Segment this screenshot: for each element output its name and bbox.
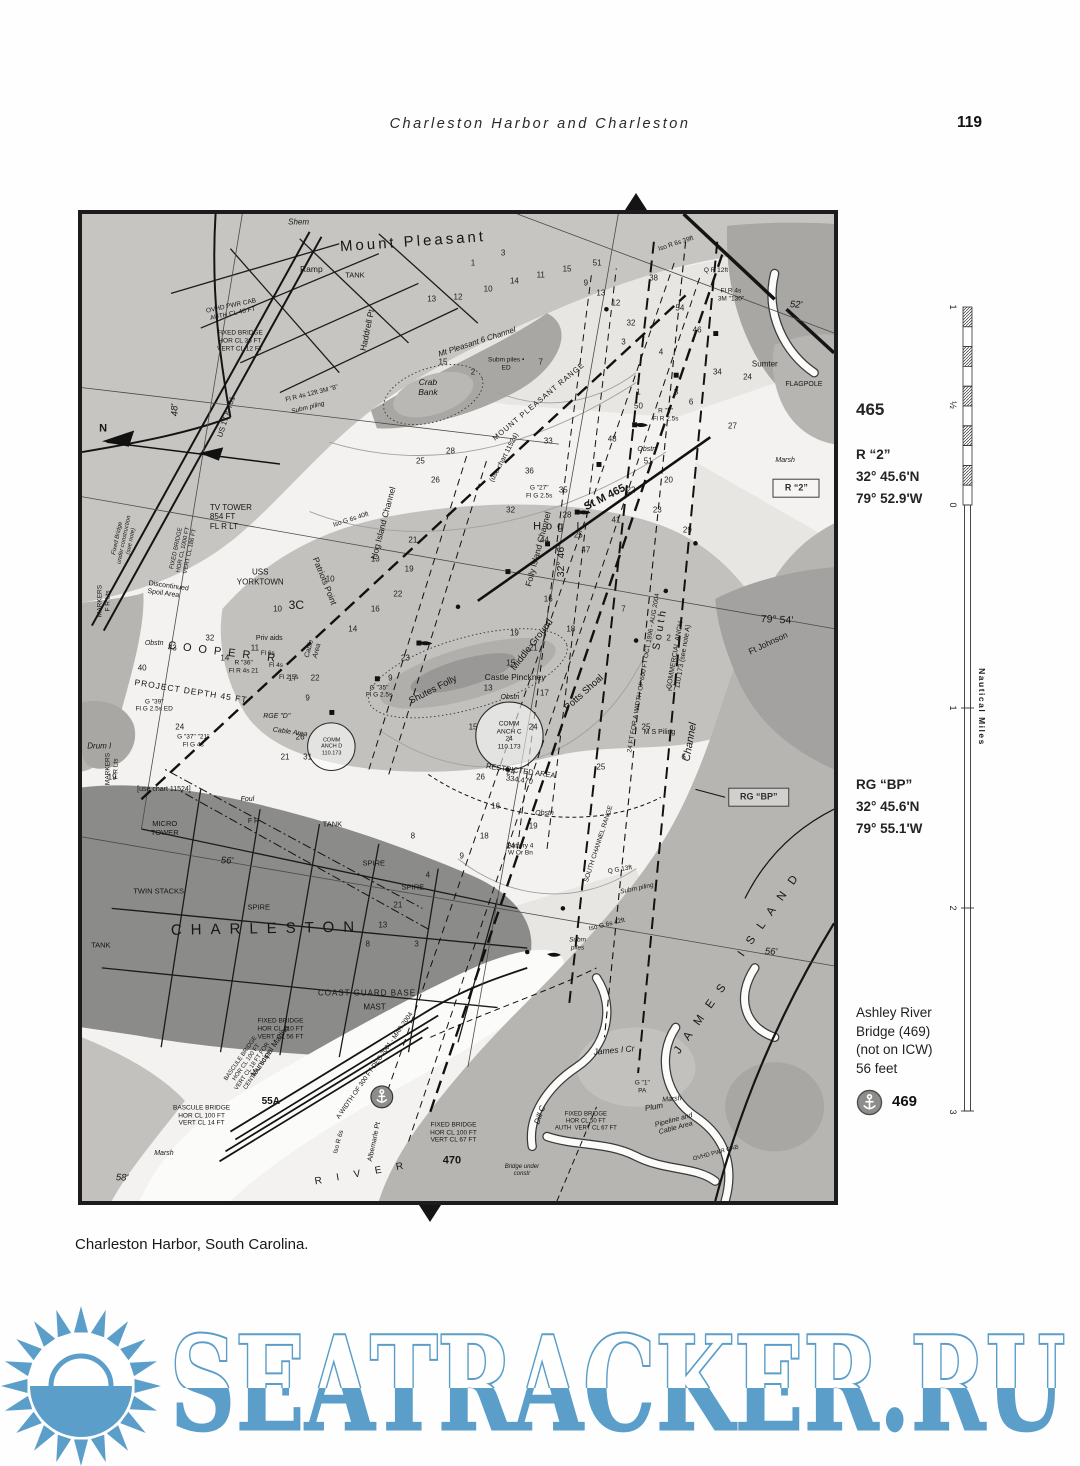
icw-route-marker-bottom-icon bbox=[419, 1205, 441, 1222]
depth-sounding: 19 bbox=[529, 821, 538, 830]
depth-sounding: 4 bbox=[426, 871, 430, 880]
depth-sounding: 14 bbox=[348, 624, 357, 633]
sun-logo-icon bbox=[1, 1306, 161, 1466]
map-label: Cable Area bbox=[304, 639, 325, 661]
map-label: G "27" Fl G 2.5s bbox=[526, 485, 552, 500]
map-label: TANK bbox=[91, 942, 110, 951]
depth-sounding: 21 bbox=[281, 752, 290, 761]
map-label: COMMERCIAL ANCH 110.173 (see note A) bbox=[666, 621, 694, 691]
chart-number: 465 bbox=[856, 400, 884, 420]
map-label: 56' bbox=[221, 856, 234, 868]
depth-sounding: 25 bbox=[574, 530, 583, 539]
map-label: R I V E R bbox=[314, 1160, 410, 1188]
depth-sounding: 35 bbox=[559, 486, 568, 495]
scale-tick-label: ½ bbox=[948, 401, 958, 409]
map-label: Plum bbox=[644, 1101, 664, 1113]
depth-sounding: 3 bbox=[501, 249, 505, 258]
chart-labels: Mount PleasantTANKRampShemHaddrell PtCra… bbox=[82, 214, 834, 1201]
map-label: R “2” bbox=[773, 479, 820, 498]
depth-sounding: 13 bbox=[484, 683, 493, 692]
map-label: SPIRE bbox=[402, 884, 425, 893]
depth-sounding: 40 bbox=[138, 664, 147, 673]
map-label: Fl 4s bbox=[269, 662, 283, 670]
depth-sounding: 11 bbox=[537, 271, 545, 280]
mark-name: RG “BP” bbox=[856, 774, 922, 796]
depth-sounding: 13 bbox=[371, 555, 380, 564]
map-label: G "39" Fl G 2.5s ED bbox=[136, 698, 173, 713]
map-label: Obstn bbox=[535, 810, 554, 818]
map-label: FIXED BRIDGE HOR CL 36 FT VERT CL 12 FT bbox=[217, 330, 263, 353]
depth-sounding: 23 bbox=[401, 654, 410, 663]
depth-sounding: 12 bbox=[454, 292, 463, 301]
bridge-name-line1: Ashley River bbox=[856, 1004, 933, 1023]
depth-sounding: 22 bbox=[311, 673, 320, 682]
depth-sounding: 16 bbox=[371, 604, 380, 613]
depth-sounding: 24 bbox=[175, 723, 184, 732]
depth-sounding: 6 bbox=[689, 397, 693, 406]
mark-latitude: 32° 45.6'N bbox=[856, 796, 922, 818]
map-label: Subm piles bbox=[569, 937, 586, 952]
depth-sounding: 9 bbox=[305, 693, 309, 702]
depth-sounding: 26 bbox=[296, 733, 305, 742]
map-label: G "35" Fl G 2.5s bbox=[366, 684, 392, 699]
depth-sounding: 15 bbox=[563, 265, 572, 274]
map-label: FIXED BRIDGE HOR CL 100 FT VERT CL 67 FT bbox=[430, 1121, 477, 1144]
map-label: Fl R 4s 3M "130" bbox=[718, 287, 744, 302]
depth-sounding: 33 bbox=[544, 437, 553, 446]
depth-sounding: 7 bbox=[621, 604, 625, 613]
map-label: Crab Bank bbox=[418, 377, 437, 397]
map-label: Marsh bbox=[154, 1149, 173, 1157]
map-label: Obstn bbox=[145, 640, 164, 648]
depth-sounding: 24 bbox=[506, 767, 515, 776]
depth-sounding: 15 bbox=[506, 659, 515, 668]
map-label: TANK bbox=[345, 272, 364, 281]
map-label: BASCULE BRIDGE HOR CL 100 FT VERT CL 14 … bbox=[173, 1105, 230, 1128]
map-label: Shutes Folly bbox=[407, 673, 459, 707]
map-label: Mount Pleasant bbox=[339, 228, 486, 256]
map-label: Hog Island Channel bbox=[368, 486, 397, 561]
scale-tick-label: 0 bbox=[948, 502, 958, 507]
map-label: R "36" Fl R 4s 21 bbox=[229, 659, 259, 674]
depth-sounding: 34 bbox=[713, 367, 722, 376]
depth-sounding: 51 bbox=[593, 259, 602, 268]
map-label: Fixed Bridge under construction (see not… bbox=[109, 513, 140, 566]
map-label: Subm piling bbox=[620, 882, 655, 897]
mark-longitude: 79° 55.1'W bbox=[856, 818, 922, 840]
scale-tick-label: 1 bbox=[948, 304, 958, 309]
map-label: Drum I bbox=[87, 741, 111, 750]
depth-sounding: 16 bbox=[491, 802, 500, 811]
nautical-chart: Mount PleasantTANKRampShemHaddrell PtCra… bbox=[78, 210, 838, 1205]
depth-sounding: 28 bbox=[446, 446, 455, 455]
depth-sounding: 48 bbox=[608, 435, 617, 444]
map-label: Fl 6s bbox=[261, 650, 275, 658]
map-label: OVHD PWR CAB AUTH CL 40 FT bbox=[206, 297, 259, 323]
map-label: Ft Johnson bbox=[747, 630, 789, 657]
depth-sounding: 9 bbox=[388, 673, 392, 682]
depth-sounding: 31 bbox=[303, 752, 312, 761]
depth-sounding: 38 bbox=[649, 274, 658, 283]
depth-sounding: 27 bbox=[728, 422, 737, 431]
map-label: US 17 & 701 bbox=[216, 396, 238, 439]
map-label: R "2" Fl R 2.5s bbox=[653, 408, 679, 423]
depth-sounding: 3 bbox=[621, 338, 625, 347]
map-label: 58' bbox=[115, 1172, 128, 1184]
icw-route-marker-top-icon bbox=[625, 193, 647, 210]
map-label: Marsh bbox=[662, 1095, 682, 1105]
depth-sounding: 22 bbox=[627, 486, 636, 495]
depth-sounding: 26 bbox=[431, 476, 440, 485]
depth-sounding: 14 bbox=[510, 277, 519, 286]
depth-sounding: 1 bbox=[636, 387, 640, 396]
depth-sounding: 14 bbox=[506, 841, 515, 850]
depth-sounding: 47 bbox=[581, 545, 590, 554]
map-label: Ramp bbox=[300, 264, 323, 274]
scale-tick-label: 3 bbox=[948, 1109, 958, 1114]
depth-sounding: 21 bbox=[408, 535, 417, 544]
map-label: Iso R 6s bbox=[332, 1129, 346, 1154]
map-label: Pipeline and Cable Area bbox=[655, 1112, 696, 1138]
bridge-annotation: Ashley River Bridge (469) (not on ICW) 5… bbox=[856, 1004, 933, 1116]
depth-sounding: 2 bbox=[471, 367, 475, 376]
depth-sounding: 19 bbox=[405, 565, 414, 574]
depth-sounding: 17 bbox=[288, 673, 297, 682]
depth-sounding: 13 bbox=[427, 294, 436, 303]
map-label: [use chart 11524] bbox=[137, 786, 191, 794]
depth-sounding: 10 bbox=[273, 604, 282, 613]
map-label: Iso G 6s 42ft bbox=[588, 916, 626, 932]
map-label: FIXED BRIDGE HOR CL 1000 FT VERT CL 186 … bbox=[169, 525, 199, 575]
depth-sounding: 24 bbox=[743, 372, 752, 381]
map-label: MARKERS F R Lts bbox=[96, 585, 111, 617]
depth-sounding: 44 bbox=[540, 535, 549, 544]
map-label: Q G 13ft bbox=[607, 864, 633, 876]
map-label: Fl R 4s 12ft 3M "8" bbox=[285, 383, 339, 404]
depth-sounding: 32 bbox=[627, 318, 636, 327]
depth-sounding: 8 bbox=[411, 831, 415, 840]
depth-sounding: 25 bbox=[596, 762, 605, 771]
map-label: TWIN STACKS bbox=[133, 888, 184, 897]
map-label: Foul bbox=[241, 796, 255, 804]
depth-sounding: 36 bbox=[525, 466, 534, 475]
depth-sounding: 24 bbox=[529, 723, 538, 732]
depth-sounding: 15 bbox=[439, 358, 448, 367]
map-label: COAST GUARD BASE bbox=[318, 988, 416, 997]
mark-name: R “2” bbox=[856, 444, 922, 466]
map-label: G "37" "21" Fl G 4s bbox=[177, 733, 209, 748]
map-label: Castle Pinckney bbox=[485, 672, 546, 682]
map-label: Albemarle Pt bbox=[366, 1121, 382, 1162]
map-label: Mt Pleasant 6 Channel bbox=[437, 325, 517, 359]
map-label: SPIRE bbox=[363, 860, 386, 869]
mark-latitude: 32° 45.6'N bbox=[856, 466, 922, 488]
depth-sounding: 26 bbox=[476, 772, 485, 781]
map-label: James I Cr bbox=[593, 1043, 635, 1057]
map-label: Priv aids bbox=[256, 635, 283, 643]
depth-sounding: 15 bbox=[469, 723, 478, 732]
map-label: 48' bbox=[170, 404, 181, 416]
depth-sounding: 1 bbox=[471, 259, 475, 268]
map-label: TANK bbox=[323, 821, 342, 830]
bridge-name-line2: Bridge (469) bbox=[856, 1023, 933, 1042]
depth-sounding: 46 bbox=[693, 326, 702, 335]
depth-sounding: 8 bbox=[366, 940, 370, 949]
map-label: Obstn bbox=[501, 694, 520, 702]
depth-sounding: 22 bbox=[393, 589, 402, 598]
map-label: MOUNT PLEASANT RANGE bbox=[491, 360, 587, 442]
book-page: Charleston Harbor and Charleston 119 bbox=[0, 0, 1080, 1466]
depth-sounding: 13 bbox=[378, 920, 387, 929]
map-label: COMM ANCH D 110.173 bbox=[321, 737, 342, 756]
depth-sounding: 23 bbox=[653, 506, 662, 515]
depth-sounding: 50 bbox=[634, 402, 643, 411]
depth-sounding: 27 bbox=[668, 683, 677, 692]
map-label: Marsh bbox=[775, 457, 794, 465]
depth-sounding: 20 bbox=[664, 476, 673, 485]
map-label: St M 465 bbox=[582, 482, 628, 514]
map-label: Subm piling bbox=[290, 401, 325, 417]
anchor-icon bbox=[856, 1089, 883, 1116]
map-label: MICRO TOWER bbox=[151, 820, 179, 838]
map-label: Discontinued Spoil Area bbox=[147, 580, 189, 602]
map-label: 32° 46' bbox=[555, 545, 567, 577]
map-label: SPIRE bbox=[247, 903, 270, 912]
map-label: N bbox=[99, 423, 107, 436]
map-label: RGE "D" bbox=[263, 713, 290, 721]
depth-sounding: 32 bbox=[205, 634, 214, 643]
depth-sounding: 10 bbox=[326, 575, 335, 584]
depth-sounding: 6 bbox=[681, 752, 685, 761]
map-label: Obstn bbox=[637, 446, 656, 454]
map-label: Haddrell Pt bbox=[358, 309, 377, 352]
depth-sounding: 8 bbox=[674, 387, 678, 396]
map-label: Subm piles • ED bbox=[488, 356, 524, 371]
depth-sounding: 43 bbox=[168, 644, 177, 653]
map-label: 470 bbox=[443, 1154, 461, 1167]
depth-sounding: 12 bbox=[611, 298, 620, 307]
figure-caption: Charleston Harbor, South Carolina. bbox=[75, 1236, 308, 1253]
depth-sounding: 17 bbox=[540, 688, 549, 697]
depth-sounding: 21 bbox=[393, 900, 402, 909]
map-label: 56' bbox=[764, 946, 777, 958]
depth-sounding: 10 bbox=[484, 285, 493, 294]
bridge-badge-number: 469 bbox=[892, 1092, 917, 1113]
depth-sounding: 13 bbox=[596, 288, 605, 297]
scale-tick-label: 2 bbox=[948, 905, 958, 910]
depth-sounding: 4 bbox=[659, 348, 663, 357]
depth-sounding: 29 bbox=[683, 525, 692, 534]
depth-sounding: 9 bbox=[460, 851, 464, 860]
depth-sounding: 2 bbox=[666, 634, 670, 643]
depth-sounding: 32 bbox=[506, 506, 515, 515]
depth-sounding: 21 bbox=[529, 644, 538, 653]
page-number: 119 bbox=[957, 114, 982, 132]
map-label: 52' bbox=[790, 299, 803, 311]
depth-sounding: 9 bbox=[584, 279, 588, 288]
map-label: Dill C bbox=[532, 1105, 547, 1126]
map-label: A WIDTH OF 300 FT DEC 2001 - MAR 2004 bbox=[335, 1011, 415, 1121]
scale-bar-title: Nautical Miles bbox=[977, 668, 987, 746]
map-label: Iso G 6s 40ft bbox=[332, 511, 369, 530]
mark-r2-annotation: R “2” 32° 45.6'N 79° 52.9'W bbox=[856, 444, 922, 510]
depth-sounding: 3 bbox=[414, 940, 418, 949]
map-label: MAST bbox=[363, 1002, 385, 1011]
map-label: 79° 54' bbox=[760, 613, 793, 627]
map-label: Shem bbox=[288, 217, 309, 226]
map-label: FLAGPOLE bbox=[785, 381, 822, 389]
depth-sounding: 51 bbox=[644, 456, 653, 465]
depth-sounding: 25 bbox=[416, 456, 425, 465]
scale-tick-label: 1 bbox=[948, 705, 958, 710]
mark-longitude: 79° 52.9'W bbox=[856, 488, 922, 510]
map-label: CHARLESTON bbox=[171, 918, 364, 939]
depth-sounding: 7 bbox=[538, 358, 542, 367]
map-label: Bridge under constr bbox=[505, 1164, 539, 1178]
bridge-clearance: 56 feet bbox=[856, 1060, 933, 1079]
map-label: Sumter bbox=[752, 359, 778, 368]
mark-rgbp-annotation: RG “BP” 32° 45.6'N 79° 55.1'W bbox=[856, 774, 922, 840]
map-label: RESTRICTED AREA 334.470 bbox=[484, 762, 556, 789]
map-label: TV TOWER 854 FT FL R LT bbox=[210, 503, 252, 531]
map-label: F R bbox=[248, 818, 259, 826]
bridge-note: (not on ICW) bbox=[856, 1041, 933, 1060]
map-label: COMM ANCH C 24 110.173 bbox=[497, 721, 522, 752]
depth-sounding: 18 bbox=[566, 624, 575, 633]
depth-sounding: 14 bbox=[220, 654, 229, 663]
depth-sounding: 28 bbox=[563, 511, 572, 520]
map-label: G "1" PA bbox=[635, 1080, 650, 1095]
depth-sounding: 19 bbox=[510, 629, 519, 638]
depth-sounding: 19 bbox=[108, 772, 117, 781]
page-header-title: Charleston Harbor and Charleston bbox=[390, 116, 691, 132]
map-label: USS YORKTOWN bbox=[237, 568, 284, 587]
map-label: FIXED BRIDGE HOR CL 50 FT AUTH VERT CL 6… bbox=[555, 1111, 617, 1132]
watermark: SEATRACKER.RU SEATRACKER.RU bbox=[0, 1300, 1080, 1466]
depth-sounding: 54 bbox=[675, 303, 684, 312]
depth-sounding: 41 bbox=[611, 515, 620, 524]
map-label: OVHD PWR CAB bbox=[692, 1144, 739, 1163]
map-label: 55A bbox=[262, 1096, 280, 1108]
depth-sounding: 18 bbox=[480, 831, 489, 840]
map-label: 3C bbox=[289, 598, 304, 612]
map-label: Iso R 6s 39ft bbox=[658, 234, 695, 253]
depth-sounding: 16 bbox=[544, 594, 553, 603]
depth-sounding: 25 bbox=[642, 723, 651, 732]
map-label: RG “BP” bbox=[728, 788, 790, 807]
map-label: J A M E S bbox=[672, 979, 732, 1057]
depth-sounding: 11 bbox=[251, 644, 259, 653]
map-label: Potts Shoal bbox=[562, 672, 606, 713]
map-label: Q R 12ft bbox=[704, 267, 728, 275]
